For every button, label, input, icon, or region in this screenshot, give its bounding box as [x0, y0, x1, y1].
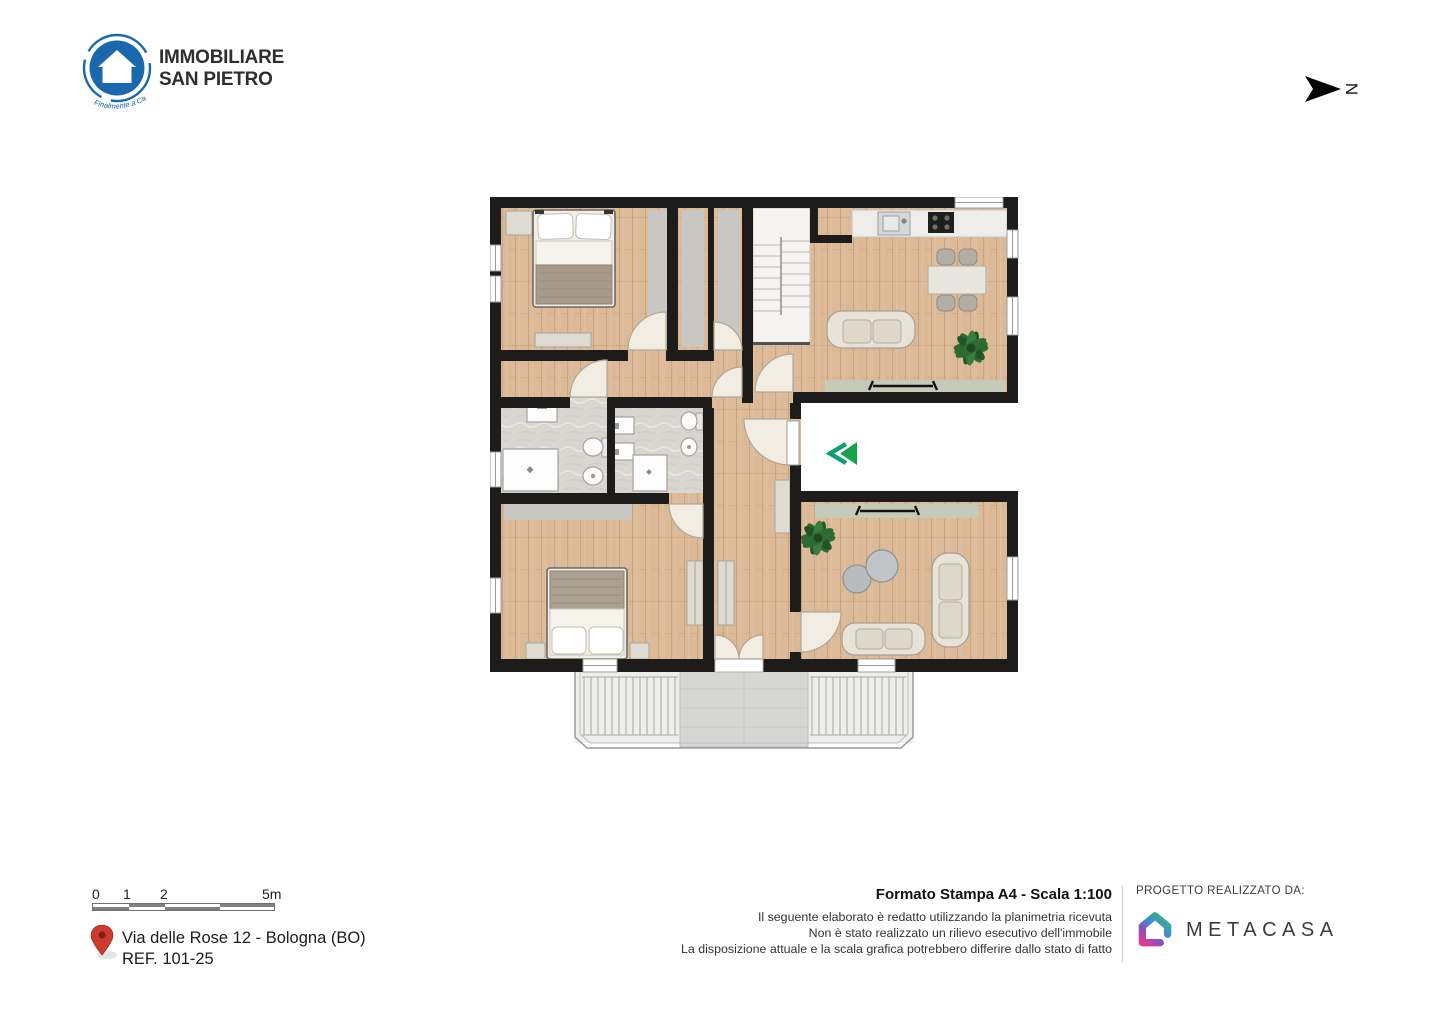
agency-name-line1: IMMOBILIARE [159, 47, 284, 69]
french-door-threshold [715, 659, 763, 672]
dining-chair [937, 249, 955, 265]
metacasa-brand: METACASA [1186, 919, 1339, 942]
nightstand [630, 643, 649, 659]
credits: PROGETTO REALIZZATO DA: METACASA [1136, 885, 1339, 950]
footer-divider [1122, 886, 1123, 962]
dining-table [928, 266, 986, 294]
agency-name: IMMOBILIARE SAN PIETRO [159, 47, 284, 91]
dining-chair [959, 249, 977, 265]
pillow [552, 627, 586, 654]
scale-label-1: 1 [123, 886, 131, 902]
nightstand [526, 643, 545, 659]
kitchen [852, 210, 1007, 237]
agency-name-line2: SAN PIETRO [159, 69, 284, 91]
print-info: Formato Stampa A4 - Scala 1:100 Il segue… [552, 886, 1112, 957]
kitchen-stove [928, 212, 954, 233]
scale-label-2: 2 [160, 886, 168, 902]
pillow [589, 627, 623, 654]
north-label: N [1341, 83, 1361, 95]
scale-bar-ruler [92, 903, 275, 911]
metacasa-logo-icon [1136, 910, 1174, 950]
pillow [538, 213, 574, 239]
disclaimer-line: Non è stato realizzato un rilievo esecut… [552, 926, 1112, 942]
toilet [583, 438, 603, 456]
entrance-door-leaf [787, 421, 799, 465]
scale-label-5m: 5m [262, 886, 281, 902]
north-indicator: N [1305, 74, 1375, 116]
bench [535, 333, 591, 347]
credits-label: PROGETTO REALIZZATO DA: [1136, 885, 1339, 897]
address: Via delle Rose 12 - Bologna (BO) REF. 10… [122, 928, 366, 969]
blanket [536, 265, 612, 304]
agency-logo-icon: Finalmente a Casa [80, 30, 158, 124]
coffee-table [866, 550, 898, 582]
reference-number: REF. 101-25 [122, 949, 366, 970]
floor-plan [490, 197, 1020, 753]
north-arrow-icon [1305, 74, 1343, 106]
disclaimer: Il seguente elaborato è redatto utilizza… [552, 910, 1112, 957]
location-pin-icon [89, 923, 119, 961]
staircase [753, 208, 810, 345]
closet-rug-1 [682, 210, 704, 347]
floor-plan-page: Finalmente a Casa IMMOBILIARE SAN PIETRO… [0, 0, 1440, 1018]
dresser [506, 211, 532, 235]
dining-chair [959, 295, 977, 311]
scale-label-0: 0 [92, 886, 100, 902]
dining-chair [937, 295, 955, 311]
address-line: Via delle Rose 12 - Bologna (BO) [122, 928, 366, 949]
balcony [575, 670, 913, 748]
disclaimer-line: Il seguente elaborato è redatto utilizza… [552, 910, 1112, 926]
toilet [681, 412, 697, 430]
wardrobe [775, 480, 790, 533]
pillow [576, 213, 612, 239]
entrance-marker-icon [830, 442, 857, 465]
print-format-title: Formato Stampa A4 - Scala 1:100 [552, 886, 1112, 903]
scale-bar: 0 1 2 5m [92, 886, 282, 916]
disclaimer-line: La disposizione attuale e la scala grafi… [552, 942, 1112, 958]
